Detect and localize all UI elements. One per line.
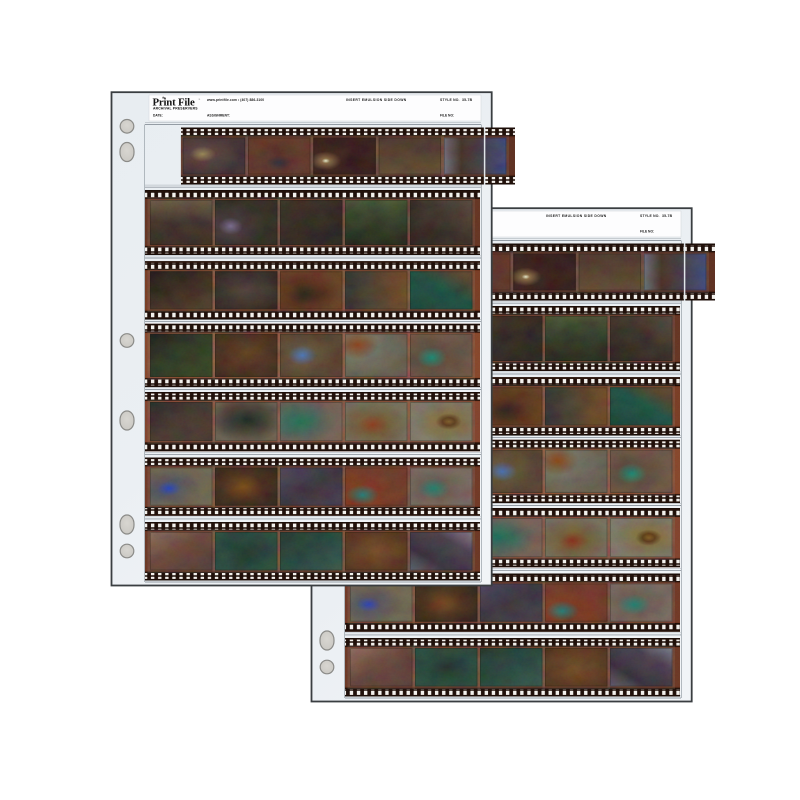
- svg-text:DATE:: DATE:: [153, 113, 163, 117]
- svg-text:ASSIGNMENT:: ASSIGNMENT:: [207, 113, 230, 117]
- svg-text:ARCHIVAL PRESERVERS: ARCHIVAL PRESERVERS: [153, 107, 198, 111]
- svg-text:FILE NO:: FILE NO:: [440, 113, 454, 117]
- svg-text:INSERT EMULSION SIDE DOWN: INSERT EMULSION SIDE DOWN: [346, 98, 407, 102]
- svg-text:INSERT EMULSION SIDE DOWN: INSERT EMULSION SIDE DOWN: [546, 214, 607, 218]
- svg-text:FILE NO:: FILE NO:: [640, 229, 654, 233]
- svg-text:STYLE NO. 35-7B: STYLE NO. 35-7B: [640, 214, 673, 218]
- svg-text:www.printfile.com • (407) 886-: www.printfile.com • (407) 886-3100: [206, 98, 264, 102]
- svg-text:STYLE NO. 35-7B: STYLE NO. 35-7B: [440, 98, 473, 102]
